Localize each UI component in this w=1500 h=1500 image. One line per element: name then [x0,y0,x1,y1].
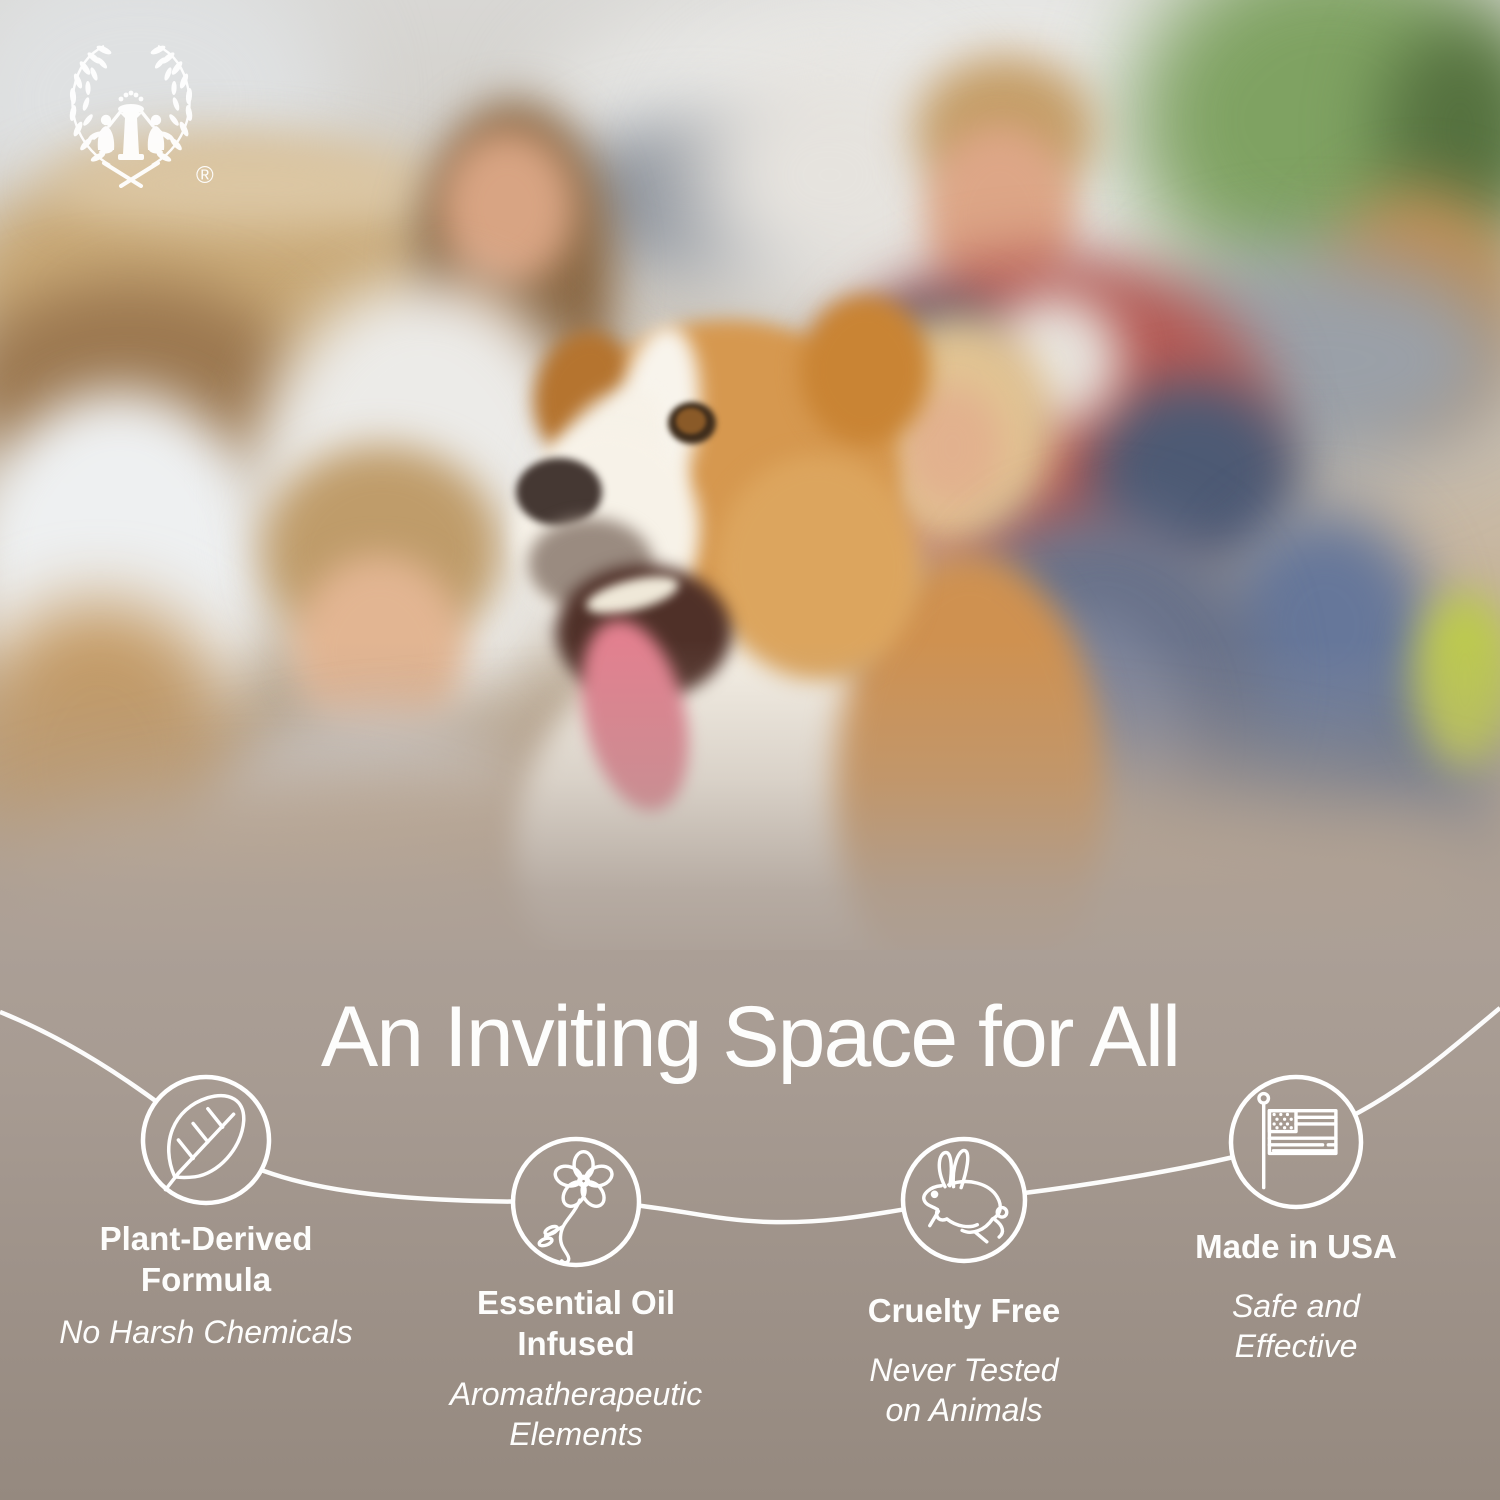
dog-nose [516,458,602,526]
logo-figure-left [94,111,121,150]
family-photo [0,0,1500,970]
feature-plant-derived-subtitle: No Harsh Chemicals [36,1312,376,1352]
rabbit-badge-circle [903,1139,1025,1261]
feature-cruelty-free-subtitle: Never Tested on Animals [794,1350,1134,1430]
logo-figure-right [141,111,168,150]
mom-face [440,130,575,285]
feature-essential-oil-subtitle: Aromatherapeutic Elements [406,1374,746,1454]
product-infographic: ® [0,0,1500,1500]
feature-made-in-usa-subtitle: Safe and Effective [1126,1286,1466,1366]
feature-essential-oil-title: Essential Oil Infused [406,1282,746,1365]
usa-flag-badge-circle [1231,1077,1361,1207]
two-figures-laurel-wreath-logo [46,36,216,196]
registered-trademark: ® [196,162,214,190]
feature-cruelty-free-title: Cruelty Free [794,1290,1134,1331]
dog-iris [676,408,706,434]
logo-center-pedestal [118,91,144,160]
headline: An Inviting Space for All [0,988,1500,1087]
photo-fade [0,640,1500,970]
feature-made-in-usa-title: Made in USA [1126,1226,1466,1267]
dog-ear-right [800,295,930,445]
feature-plant-derived-title: Plant-Derived Formula [36,1218,376,1301]
photo-hall-light [690,50,970,300]
